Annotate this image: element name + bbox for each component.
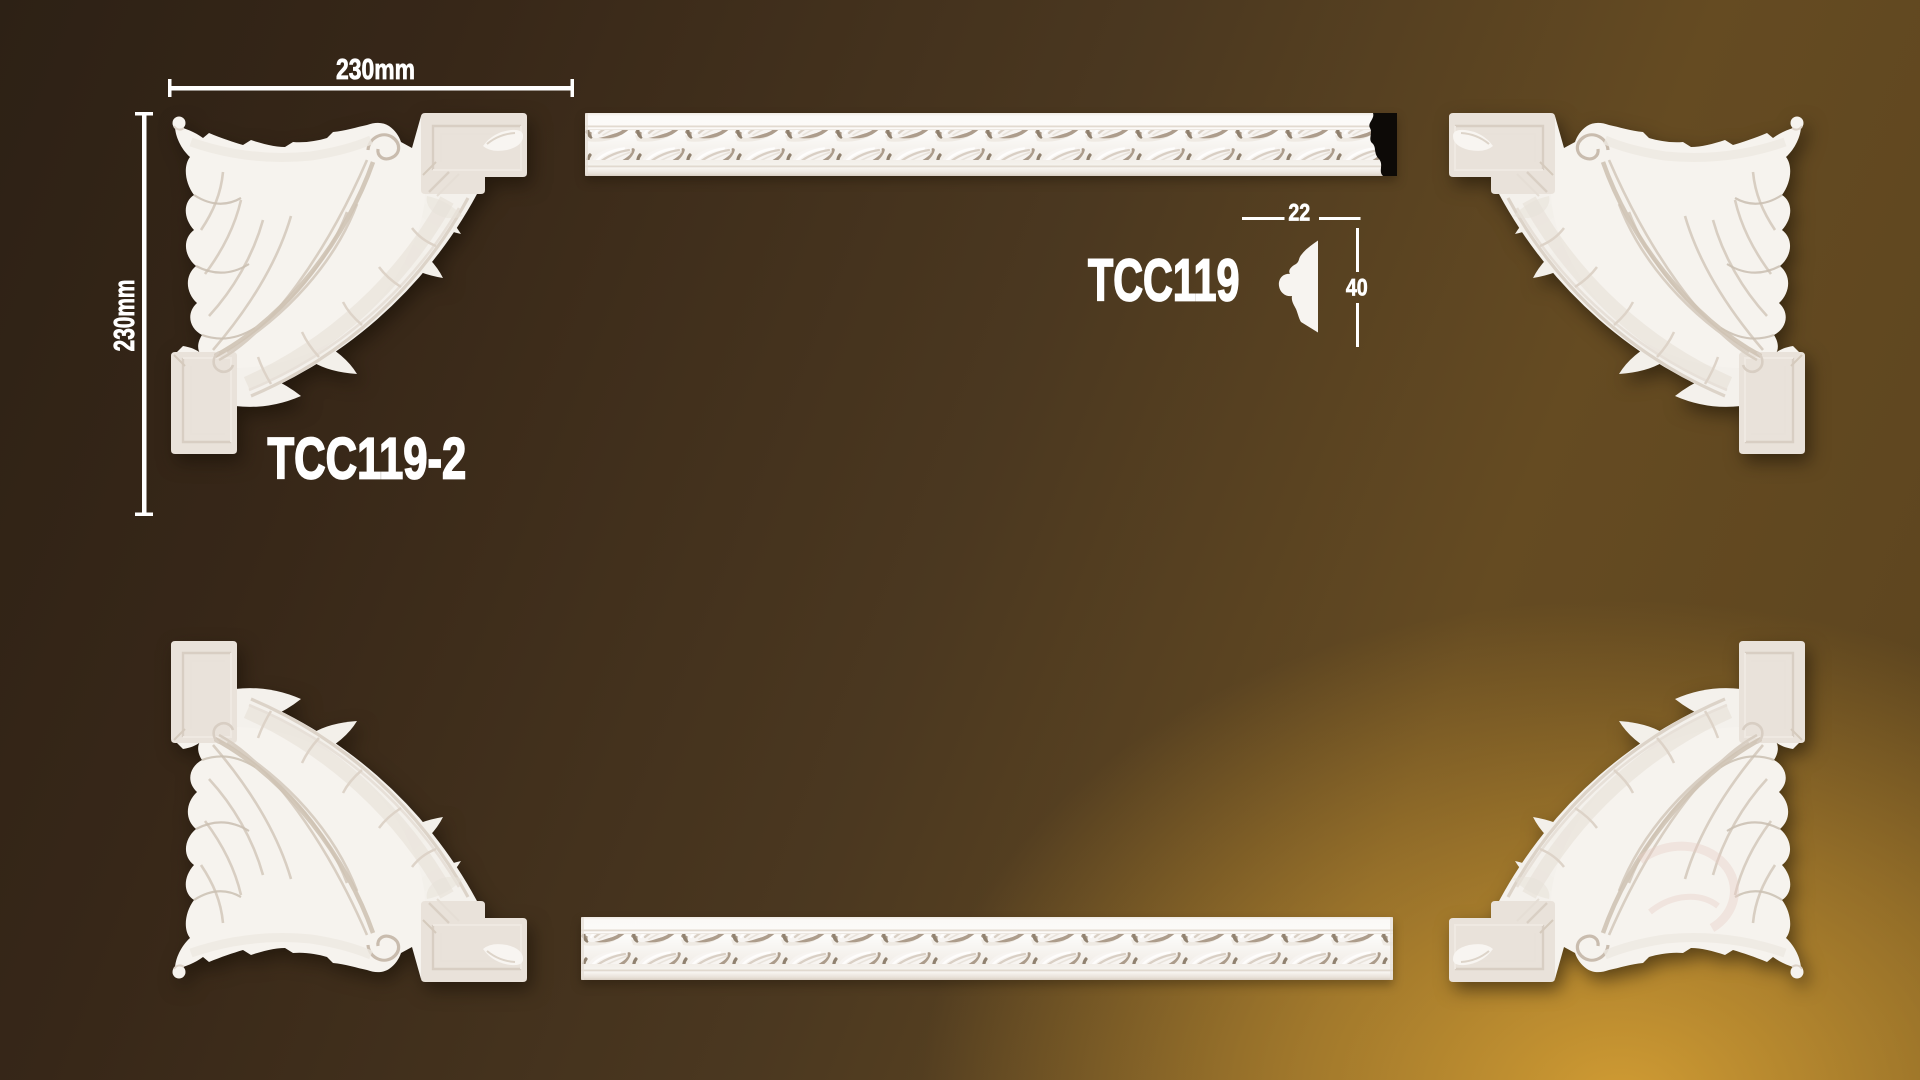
svg-text:40: 40	[1346, 274, 1368, 301]
svg-text:230mm: 230mm	[336, 52, 415, 85]
svg-text:TCC119: TCC119	[1088, 247, 1239, 313]
svg-text:22: 22	[1288, 199, 1310, 226]
svg-text:230mm: 230mm	[109, 280, 141, 352]
svg-text:TCC119-2: TCC119-2	[268, 427, 467, 491]
